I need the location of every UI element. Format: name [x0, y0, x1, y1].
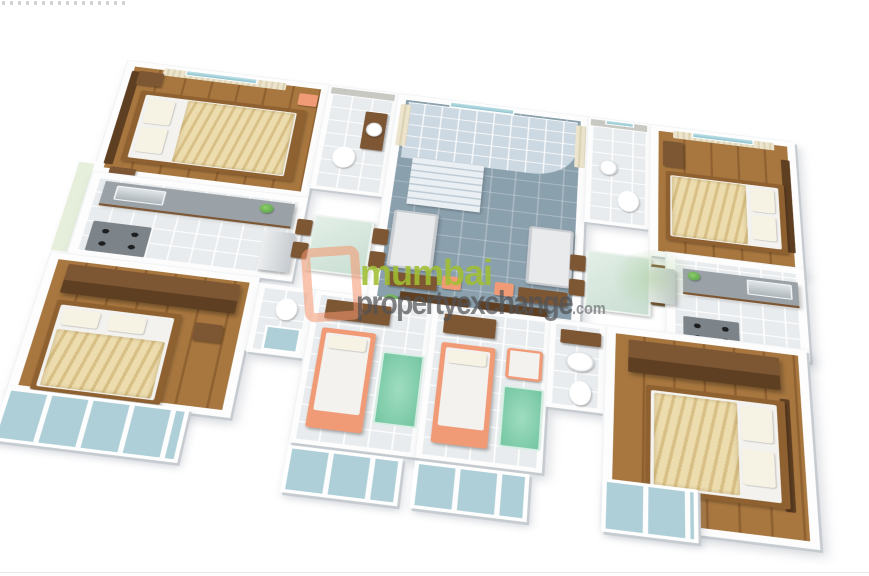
apartment-3d-plan — [0, 43, 847, 576]
duvet — [672, 176, 748, 244]
pillow — [751, 215, 776, 242]
dining-chair — [368, 251, 386, 269]
chair — [494, 282, 514, 297]
toilet — [569, 380, 592, 407]
dining-chair — [570, 254, 586, 272]
basin — [599, 159, 617, 176]
desk-chair — [297, 93, 318, 107]
dining-table-left — [304, 214, 375, 277]
floorplan-image: mumbai propertyexchange.com — [0, 0, 869, 576]
dining-chair — [371, 228, 389, 245]
dining-chair — [568, 278, 585, 296]
room-bedroom-top-right — [650, 125, 804, 275]
bedside-table — [136, 71, 165, 87]
dining-table-right — [584, 250, 651, 317]
dresser — [663, 140, 684, 168]
dining-chair — [290, 241, 309, 259]
room-bathroom-top-right — [584, 117, 650, 230]
hob — [85, 221, 152, 258]
study-desk — [324, 299, 392, 326]
balcony-glass-doors — [601, 478, 699, 543]
fridge — [256, 230, 296, 273]
toilet — [330, 145, 356, 169]
armchair — [505, 347, 543, 382]
console-desk — [518, 287, 568, 307]
sofa — [525, 226, 574, 289]
room-living-hall — [367, 94, 589, 327]
room-bathroom-bottom-right — [546, 319, 607, 414]
shower-tray — [261, 325, 302, 354]
pillow — [740, 406, 773, 444]
console-desk — [387, 271, 438, 291]
curtain — [574, 125, 586, 168]
granite-wall — [331, 87, 396, 101]
fridge — [648, 266, 675, 305]
vanity-counter — [560, 329, 601, 348]
green-rug — [372, 351, 425, 429]
room-kids-b — [415, 305, 551, 474]
pedestal-basin — [565, 350, 594, 373]
green-rug — [498, 385, 545, 452]
wardrobe — [628, 339, 781, 390]
dining-chair — [295, 219, 314, 236]
toilet — [274, 297, 299, 321]
sofa — [386, 209, 439, 272]
cropped-watermark-artifact — [2, 1, 130, 5]
duvet — [654, 393, 741, 496]
toilet — [617, 190, 638, 213]
chair — [441, 275, 461, 290]
pillow — [742, 449, 776, 489]
bottom-edge-shadow — [0, 572, 869, 573]
staircase — [406, 157, 484, 213]
study-desk — [443, 313, 497, 339]
bedside-table — [191, 322, 223, 343]
pillow — [750, 188, 775, 214]
